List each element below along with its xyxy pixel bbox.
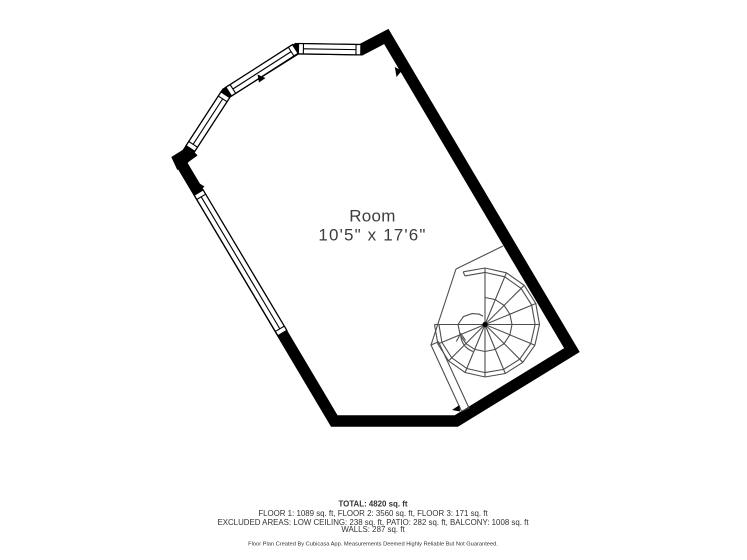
svg-text:WALLS: 287 sq. ft: WALLS: 287 sq. ft (341, 525, 405, 534)
svg-text:FLOOR 1: 1089 sq. ft, FLOOR 2:: FLOOR 1: 1089 sq. ft, FLOOR 2: 3560 sq. … (258, 509, 488, 518)
svg-text:10'5" x 17'6": 10'5" x 17'6" (318, 225, 426, 244)
svg-text:TOTAL: 4820 sq. ft: TOTAL: 4820 sq. ft (339, 500, 408, 509)
svg-text:Room: Room (349, 207, 396, 226)
svg-text:Floor Plan Created By Cubicasa: Floor Plan Created By Cubicasa App. Meas… (248, 542, 498, 548)
